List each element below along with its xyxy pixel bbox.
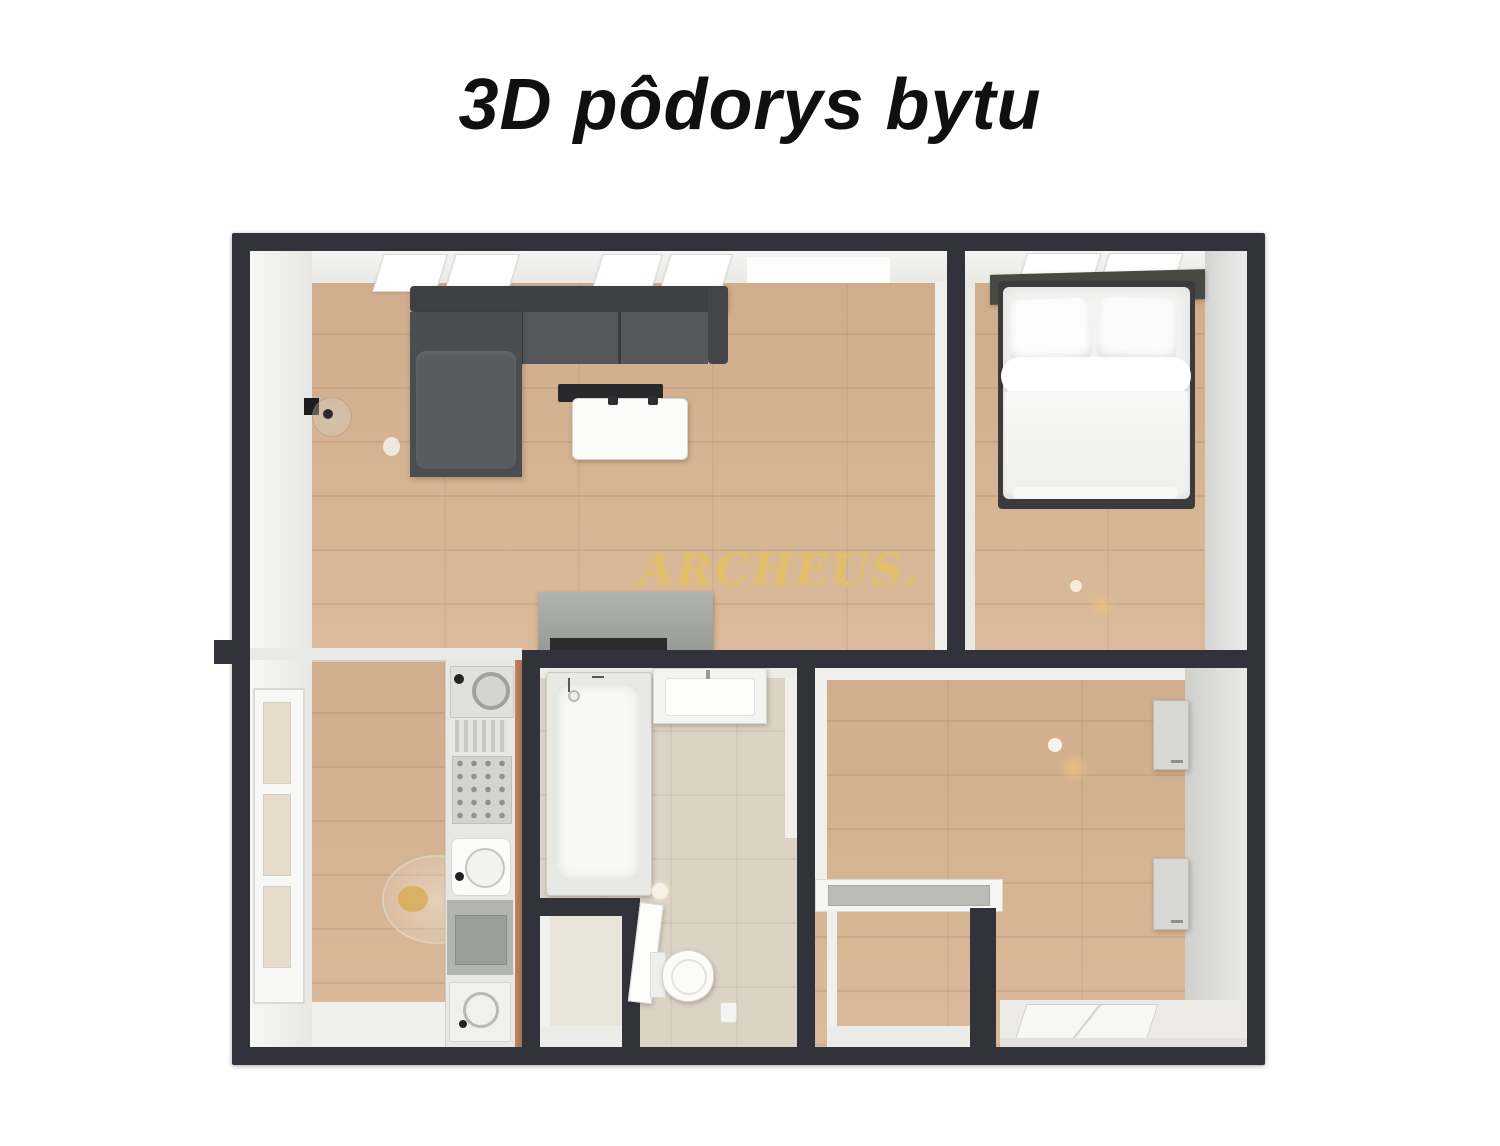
plant-center xyxy=(323,409,333,419)
cabinet-ring xyxy=(463,992,499,1028)
page-title: 3D pôdorys bytu xyxy=(0,64,1500,146)
window-sill xyxy=(747,257,890,283)
bed-foot-throw xyxy=(1013,487,1178,499)
bath-sink-basin xyxy=(665,678,755,716)
hallway xyxy=(815,668,1247,1047)
hood-fan xyxy=(472,672,510,710)
control-knob-panel xyxy=(452,756,512,824)
sofa-chaise-cushion xyxy=(416,351,516,469)
kitchen-bottom-wall-face xyxy=(312,1002,445,1047)
rug-gold-accent xyxy=(398,886,428,912)
entry-threshold xyxy=(1000,1038,1247,1047)
floor-highlight xyxy=(383,437,400,456)
floor-light xyxy=(652,883,668,899)
floor-light xyxy=(1070,580,1082,592)
cooktop-grill xyxy=(455,720,507,752)
alcove-counter-inset xyxy=(828,885,990,906)
niche-bottom-wall-face xyxy=(540,1026,622,1047)
tub-fixture xyxy=(592,676,604,678)
kitchen xyxy=(250,648,522,1047)
ceiling-light xyxy=(1048,738,1062,752)
hallway-left-wall-face xyxy=(815,680,827,880)
living-left-wall-face xyxy=(250,251,312,650)
toilet-seat xyxy=(671,959,707,995)
bed-pillow xyxy=(1008,298,1092,365)
hallway-right-wall-face xyxy=(1185,668,1247,1047)
sink-faucet xyxy=(455,872,464,881)
sideboard-inset xyxy=(550,638,667,650)
cabinet-handle xyxy=(1171,760,1183,763)
alcove-wall-vertical xyxy=(970,908,996,1047)
oven-door xyxy=(455,915,507,965)
bed-duvet-fold xyxy=(1001,357,1191,395)
sofa-armrest xyxy=(708,286,728,364)
watermark: ARCHEUS. xyxy=(640,545,880,596)
bed-duvet xyxy=(1005,391,1188,493)
ceiling-light-glow xyxy=(1058,752,1090,784)
floor-plan: ARCHEUS. xyxy=(232,233,1265,1065)
bedroom-left-wall-face xyxy=(965,281,975,650)
tv-stand-notch xyxy=(608,396,618,405)
tv-stand-notch xyxy=(648,396,658,405)
cabinet-handle xyxy=(1171,920,1183,923)
floor-light-glow xyxy=(1088,592,1116,620)
wood-panel-edge xyxy=(515,660,522,1047)
door-glass-pane xyxy=(263,886,291,968)
hood-knob xyxy=(454,674,464,684)
tv-stand xyxy=(572,398,688,460)
bedroom-right-wall-face xyxy=(1205,251,1247,650)
toilet-brush-holder xyxy=(720,1002,737,1023)
bedroom xyxy=(965,251,1247,650)
bathroom xyxy=(540,668,797,1047)
bathroom-right-wall-face xyxy=(785,678,797,838)
sink-faucet xyxy=(706,670,710,679)
bed-pillow xyxy=(1096,297,1178,364)
sofa-seam xyxy=(618,312,621,364)
sink-basin xyxy=(465,848,505,888)
tub-drain xyxy=(568,690,580,702)
wall-stub xyxy=(214,640,234,664)
alcove-bottom-wall-face xyxy=(827,1026,970,1047)
hallway-top-wall-face xyxy=(815,668,1185,680)
tub-fixture xyxy=(568,678,570,692)
door-glass-pane xyxy=(263,702,291,784)
door-glass-pane xyxy=(263,794,291,876)
bathtub-basin xyxy=(556,684,640,880)
sofa-back xyxy=(410,286,728,312)
living-right-wall-face xyxy=(935,281,947,650)
cabinet-knob xyxy=(459,1020,467,1028)
